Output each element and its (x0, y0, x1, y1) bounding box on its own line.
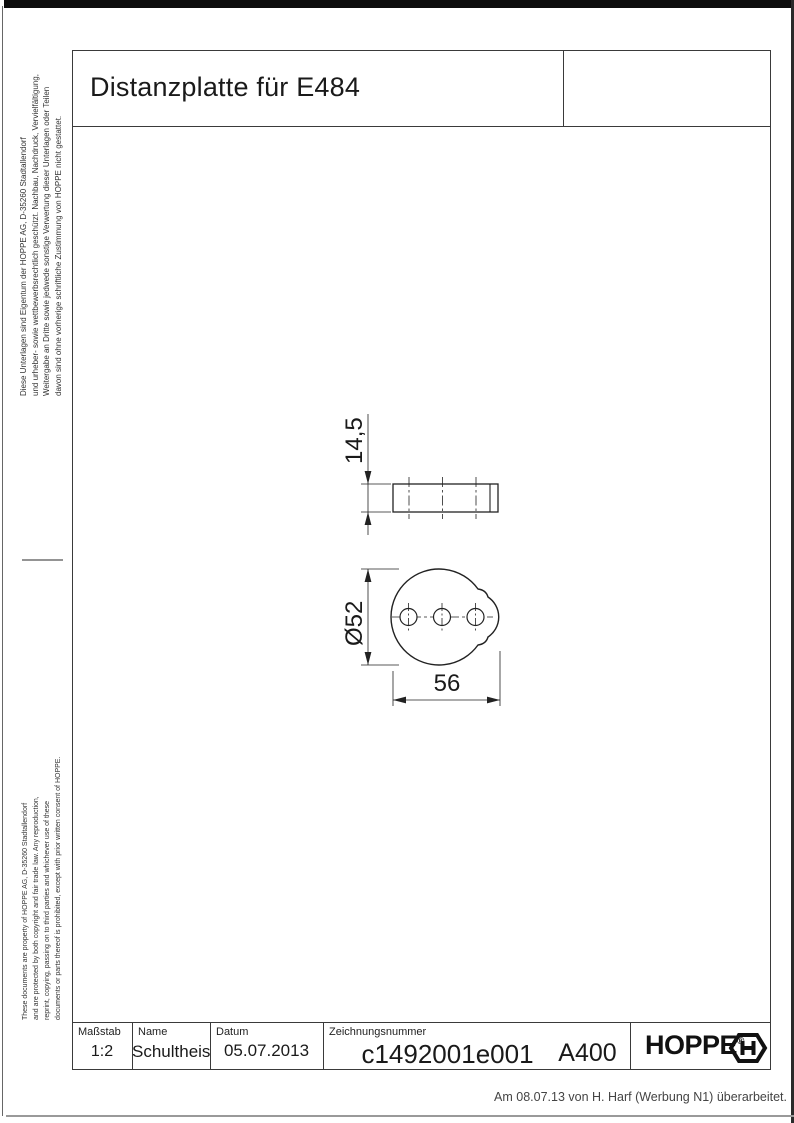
format-value: A400 (545, 1039, 630, 1068)
copyright-de-line: und urheber- sowie wettbewerbsrechtlich … (30, 44, 42, 396)
dimension-width-text: 56 (434, 670, 461, 697)
frame-left-border (72, 50, 73, 1070)
copyright-en-line: These documents are property of HOPPE AG… (20, 730, 31, 1020)
scale-label: Maßstab (78, 1026, 121, 1038)
dimension-thickness: 14,5 (341, 414, 391, 535)
arrowhead (365, 471, 372, 484)
top-black-bar (4, 0, 794, 8)
hole (467, 609, 484, 626)
copyright-note-english: These documents are property of HOPPE AG… (20, 730, 64, 1020)
hole (434, 609, 451, 626)
frame-top-border (72, 50, 771, 51)
arrowhead (487, 697, 500, 704)
side-view-outline (393, 484, 498, 512)
title-box-divider (563, 50, 564, 127)
registered-trademark-icon: ® (737, 1036, 744, 1047)
date-value: 05.07.2013 (210, 1041, 323, 1061)
copyright-en-line: reprint, copying, passing on to third pa… (42, 730, 53, 1020)
arrowhead (393, 697, 406, 704)
drawing-number-value: c1492001e001 (350, 1039, 545, 1070)
frame-right-border (770, 50, 771, 1070)
bottom-edge-line (6, 1115, 794, 1117)
dimension-width: 56 (393, 651, 500, 706)
name-value: Schultheis (132, 1042, 210, 1062)
drawing-title: Distanzplatte für E484 (90, 72, 360, 103)
copyright-de-line: Weitergabe an Dritte sowie jedwede sonst… (41, 44, 53, 396)
dimension-thickness-text: 14,5 (341, 417, 368, 464)
hoppe-logo-text: HOPPE® (645, 1030, 744, 1061)
hole (400, 609, 417, 626)
copyright-de-line: davon sind ohne vorherige schriftliche Z… (53, 44, 65, 396)
title-block-divider (323, 1022, 324, 1070)
copyright-de-line: Diese Unterlagen sind Eigentum der HOPPE… (18, 44, 30, 396)
title-block-top-border (72, 1022, 771, 1023)
arrowhead (365, 569, 372, 582)
arrowhead (365, 512, 372, 525)
dimension-diameter-text: Ø52 (341, 601, 368, 646)
scale-value: 1:2 (72, 1043, 132, 1061)
hoppe-logo-wordmark: HOPPE (645, 1030, 737, 1060)
copyright-note-german: Diese Unterlagen sind Eigentum der HOPPE… (18, 44, 64, 396)
front-view-outline (391, 569, 499, 665)
name-label: Name (138, 1026, 167, 1038)
arrowhead (365, 652, 372, 665)
drawing-number-label: Zeichnungsnummer (329, 1026, 426, 1038)
left-edge-line (2, 6, 3, 1116)
revision-note: Am 08.07.13 von H. Harf (Werbung N1) übe… (450, 1090, 787, 1104)
copyright-en-line: documents or parts thereof is prohibited… (53, 730, 64, 1020)
side-view (393, 477, 498, 519)
date-label: Datum (216, 1026, 248, 1038)
copyright-en-line: and are protected by both copyright and … (31, 730, 42, 1020)
title-block-divider (630, 1022, 631, 1070)
technical-drawing-canvas: 14,5 Ø52 56 (0, 0, 794, 1123)
front-view (391, 569, 499, 665)
title-box-bottom-border (72, 126, 771, 127)
dimension-diameter: Ø52 (341, 569, 399, 665)
